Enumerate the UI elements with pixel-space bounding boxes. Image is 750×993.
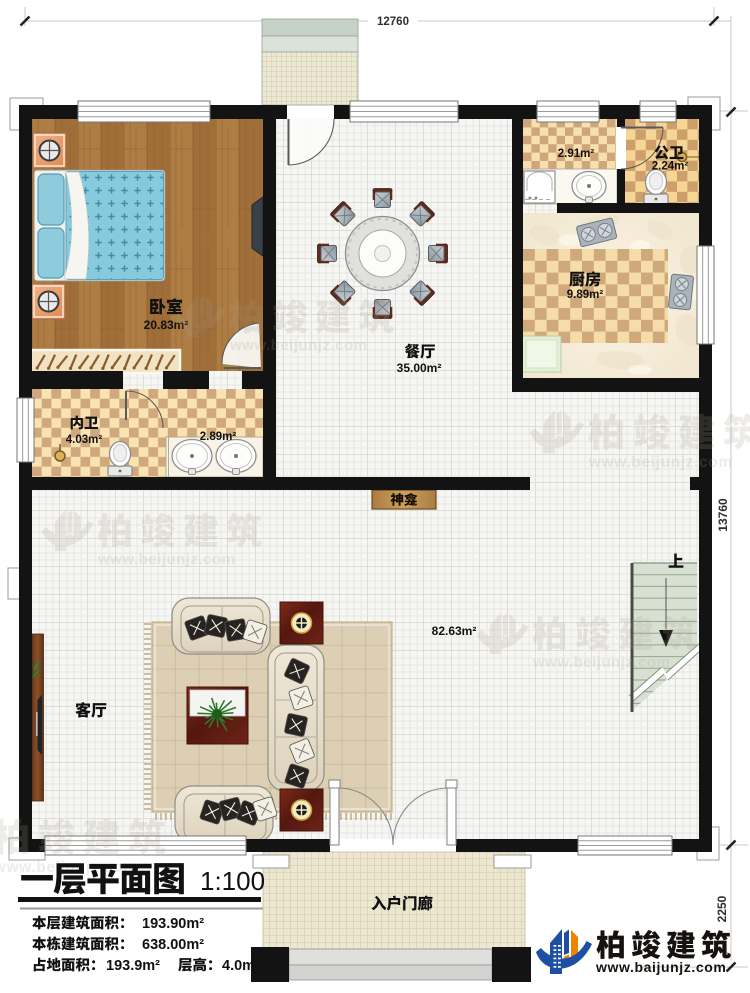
svg-text:1:100: 1:100 — [200, 866, 265, 896]
svg-text:193.9m²: 193.9m² — [106, 958, 160, 974]
svg-text:4.03m²: 4.03m² — [66, 434, 103, 446]
svg-text:2250: 2250 — [715, 895, 729, 922]
svg-text:13760: 13760 — [716, 498, 730, 532]
svg-text:12760: 12760 — [377, 16, 409, 28]
svg-text:82.63m²: 82.63m² — [432, 624, 477, 638]
svg-text:www.beijunjz.com: www.beijunjz.com — [588, 454, 733, 471]
svg-text:2.89m²: 2.89m² — [200, 431, 237, 443]
svg-text:35.00m²: 35.00m² — [397, 361, 442, 375]
svg-text:2.91m²: 2.91m² — [558, 148, 595, 160]
svg-text:638.00m²: 638.00m² — [142, 937, 204, 953]
svg-text:193.90m²: 193.90m² — [142, 916, 204, 932]
svg-text:www.baijunjz.com: www.baijunjz.com — [595, 959, 726, 975]
svg-text:www.beijunjz.com: www.beijunjz.com — [532, 654, 670, 671]
svg-text:9.89m²: 9.89m² — [567, 289, 604, 301]
svg-text:4.0m: 4.0m — [222, 958, 255, 974]
svg-text:www.beijunjz.com: www.beijunjz.com — [97, 551, 235, 568]
svg-text:2.24m²: 2.24m² — [652, 161, 689, 173]
svg-text:www.beijunjz.com: www.beijunjz.com — [229, 337, 367, 354]
